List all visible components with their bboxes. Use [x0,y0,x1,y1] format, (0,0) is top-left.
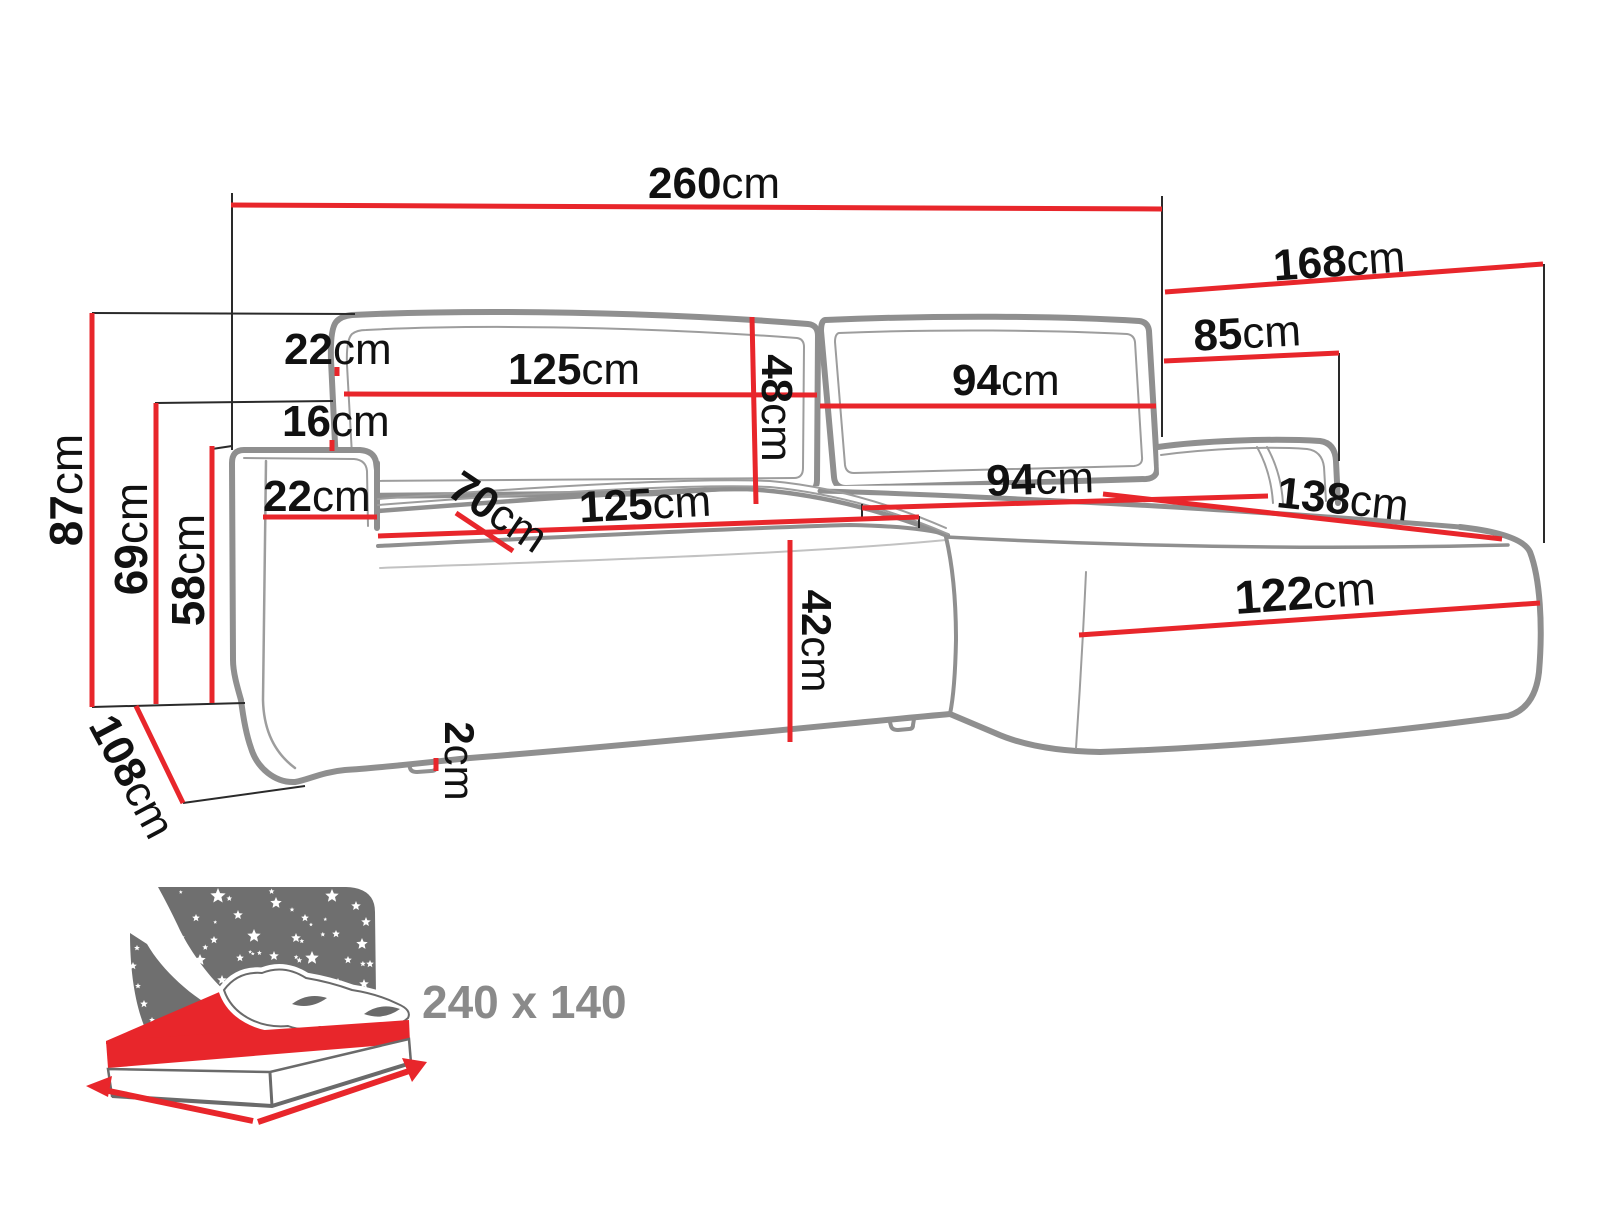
svg-text:87cm: 87cm [40,434,92,547]
svg-text:94cm: 94cm [952,356,1060,405]
svg-text:58cm: 58cm [162,514,214,627]
svg-text:168cm: 168cm [1272,232,1407,290]
svg-text:69cm: 69cm [105,483,157,596]
svg-text:42cm: 42cm [793,590,840,693]
svg-text:240 x 140: 240 x 140 [422,976,627,1028]
svg-text:94cm: 94cm [985,453,1094,506]
svg-text:48cm: 48cm [752,354,801,462]
svg-text:85cm: 85cm [1192,306,1302,361]
svg-text:122cm: 122cm [1233,561,1377,624]
svg-text:125cm: 125cm [578,477,712,533]
svg-text:125cm: 125cm [508,345,640,394]
svg-text:22cm: 22cm [263,472,371,521]
svg-text:260cm: 260cm [648,159,780,208]
svg-text:2cm: 2cm [436,721,483,800]
svg-text:16cm: 16cm [282,397,390,446]
svg-text:22cm: 22cm [284,325,392,374]
